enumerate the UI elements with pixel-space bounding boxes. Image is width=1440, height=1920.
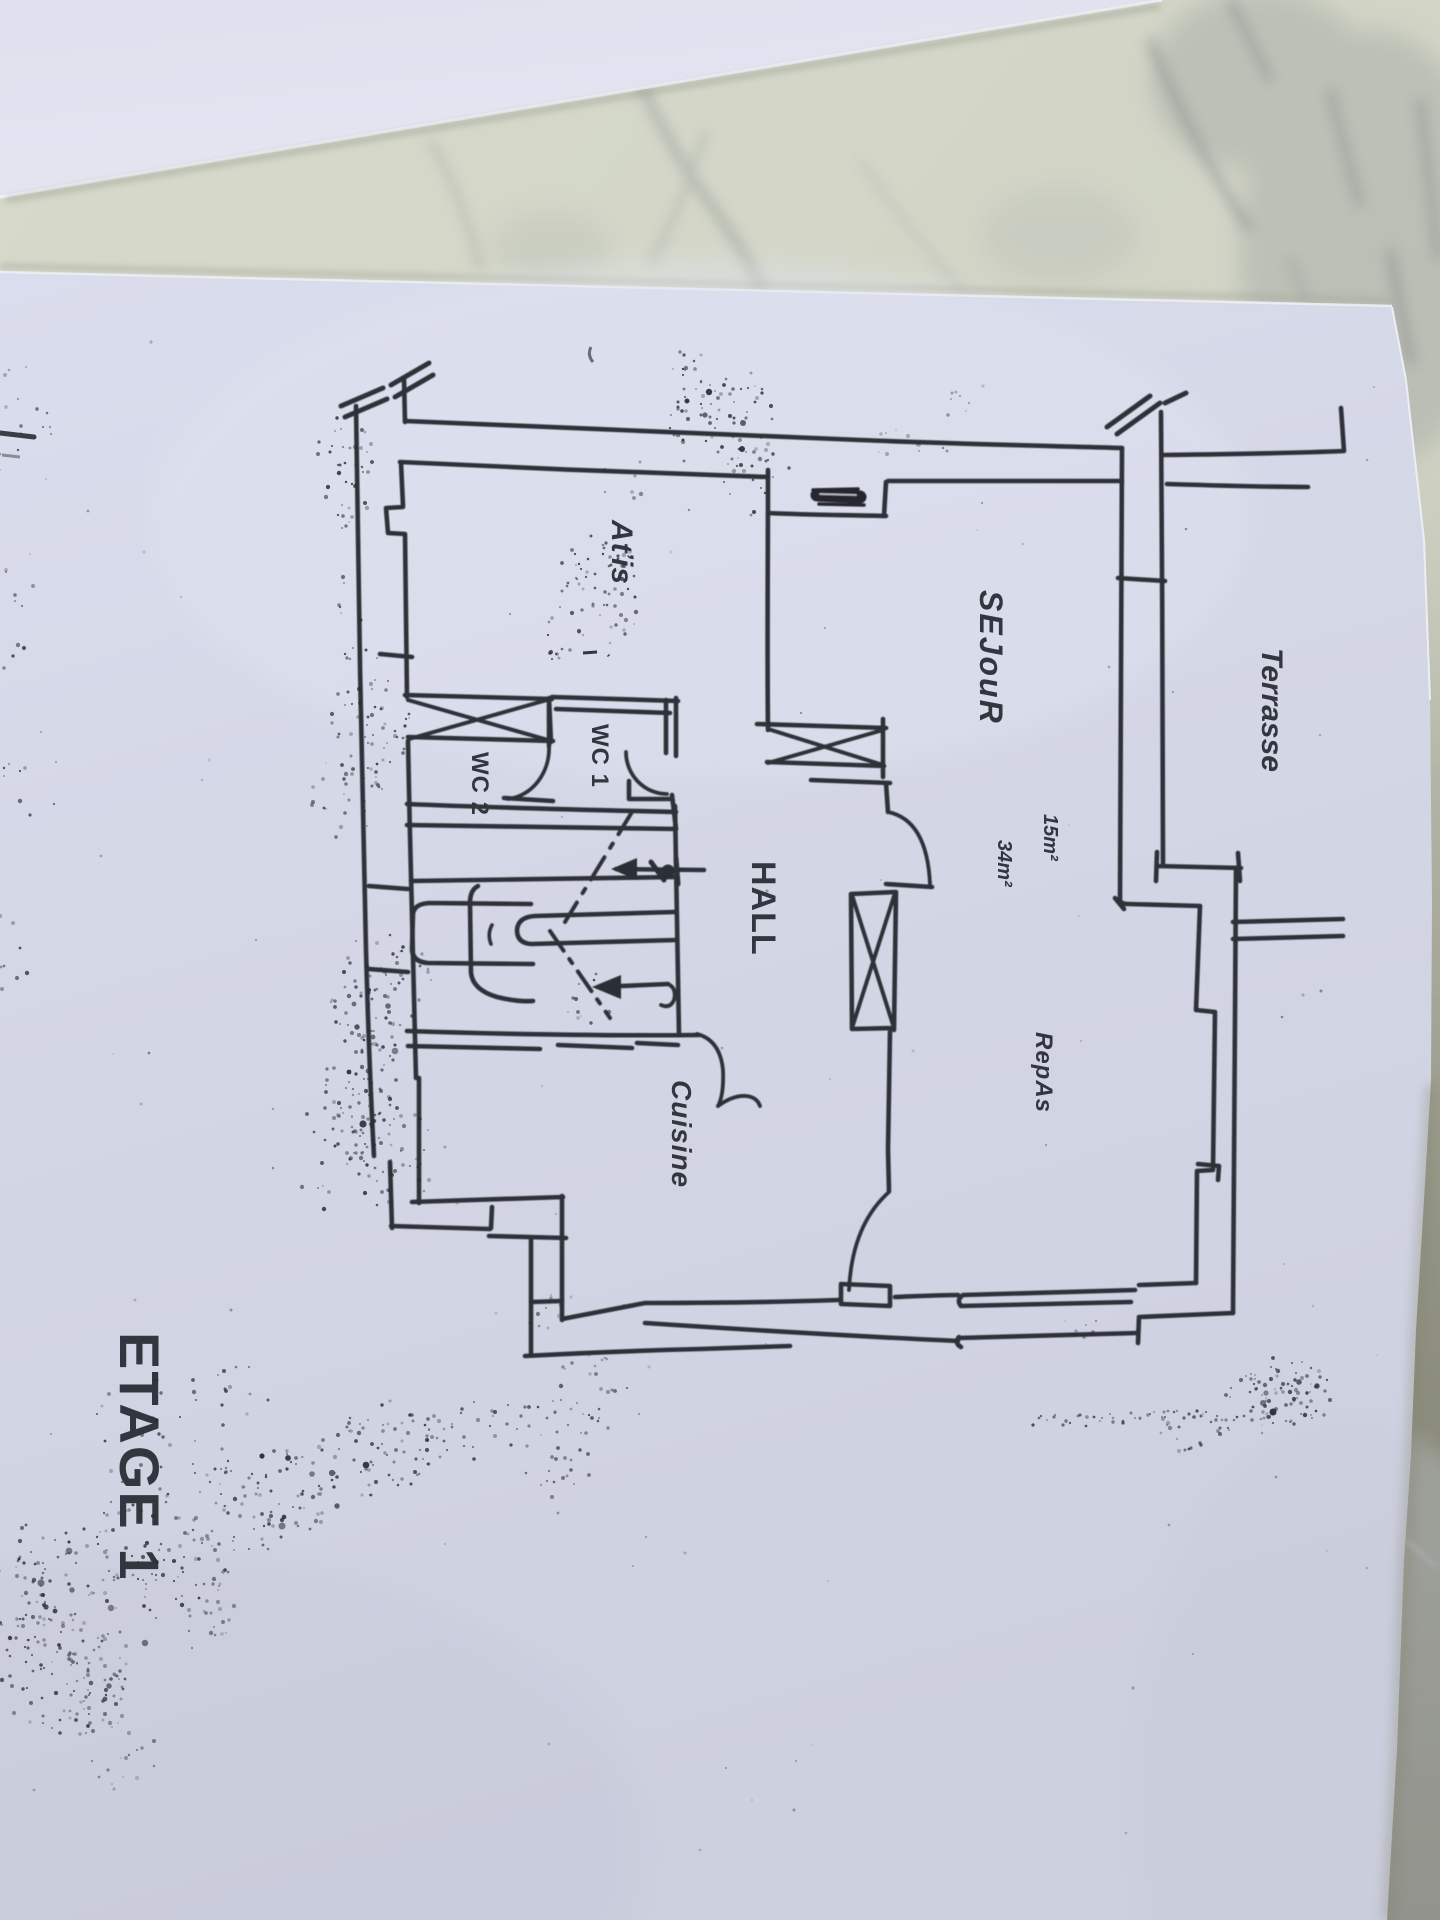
svg-text:RepAs: RepAs — [1030, 1032, 1057, 1113]
svg-text:34m²: 34m² — [993, 840, 1015, 888]
svg-text:WC 1: WC 1 — [586, 724, 613, 788]
svg-text:Cuisine: Cuisine — [666, 1080, 697, 1188]
svg-text:SEJouR: SEJouR — [973, 590, 1009, 725]
svg-text:HALL: HALL — [744, 861, 782, 956]
svg-text:15m²: 15m² — [1039, 814, 1061, 862]
svg-text:Terrasse: Terrasse — [1255, 648, 1288, 772]
svg-text:WC 2: WC 2 — [466, 752, 493, 816]
